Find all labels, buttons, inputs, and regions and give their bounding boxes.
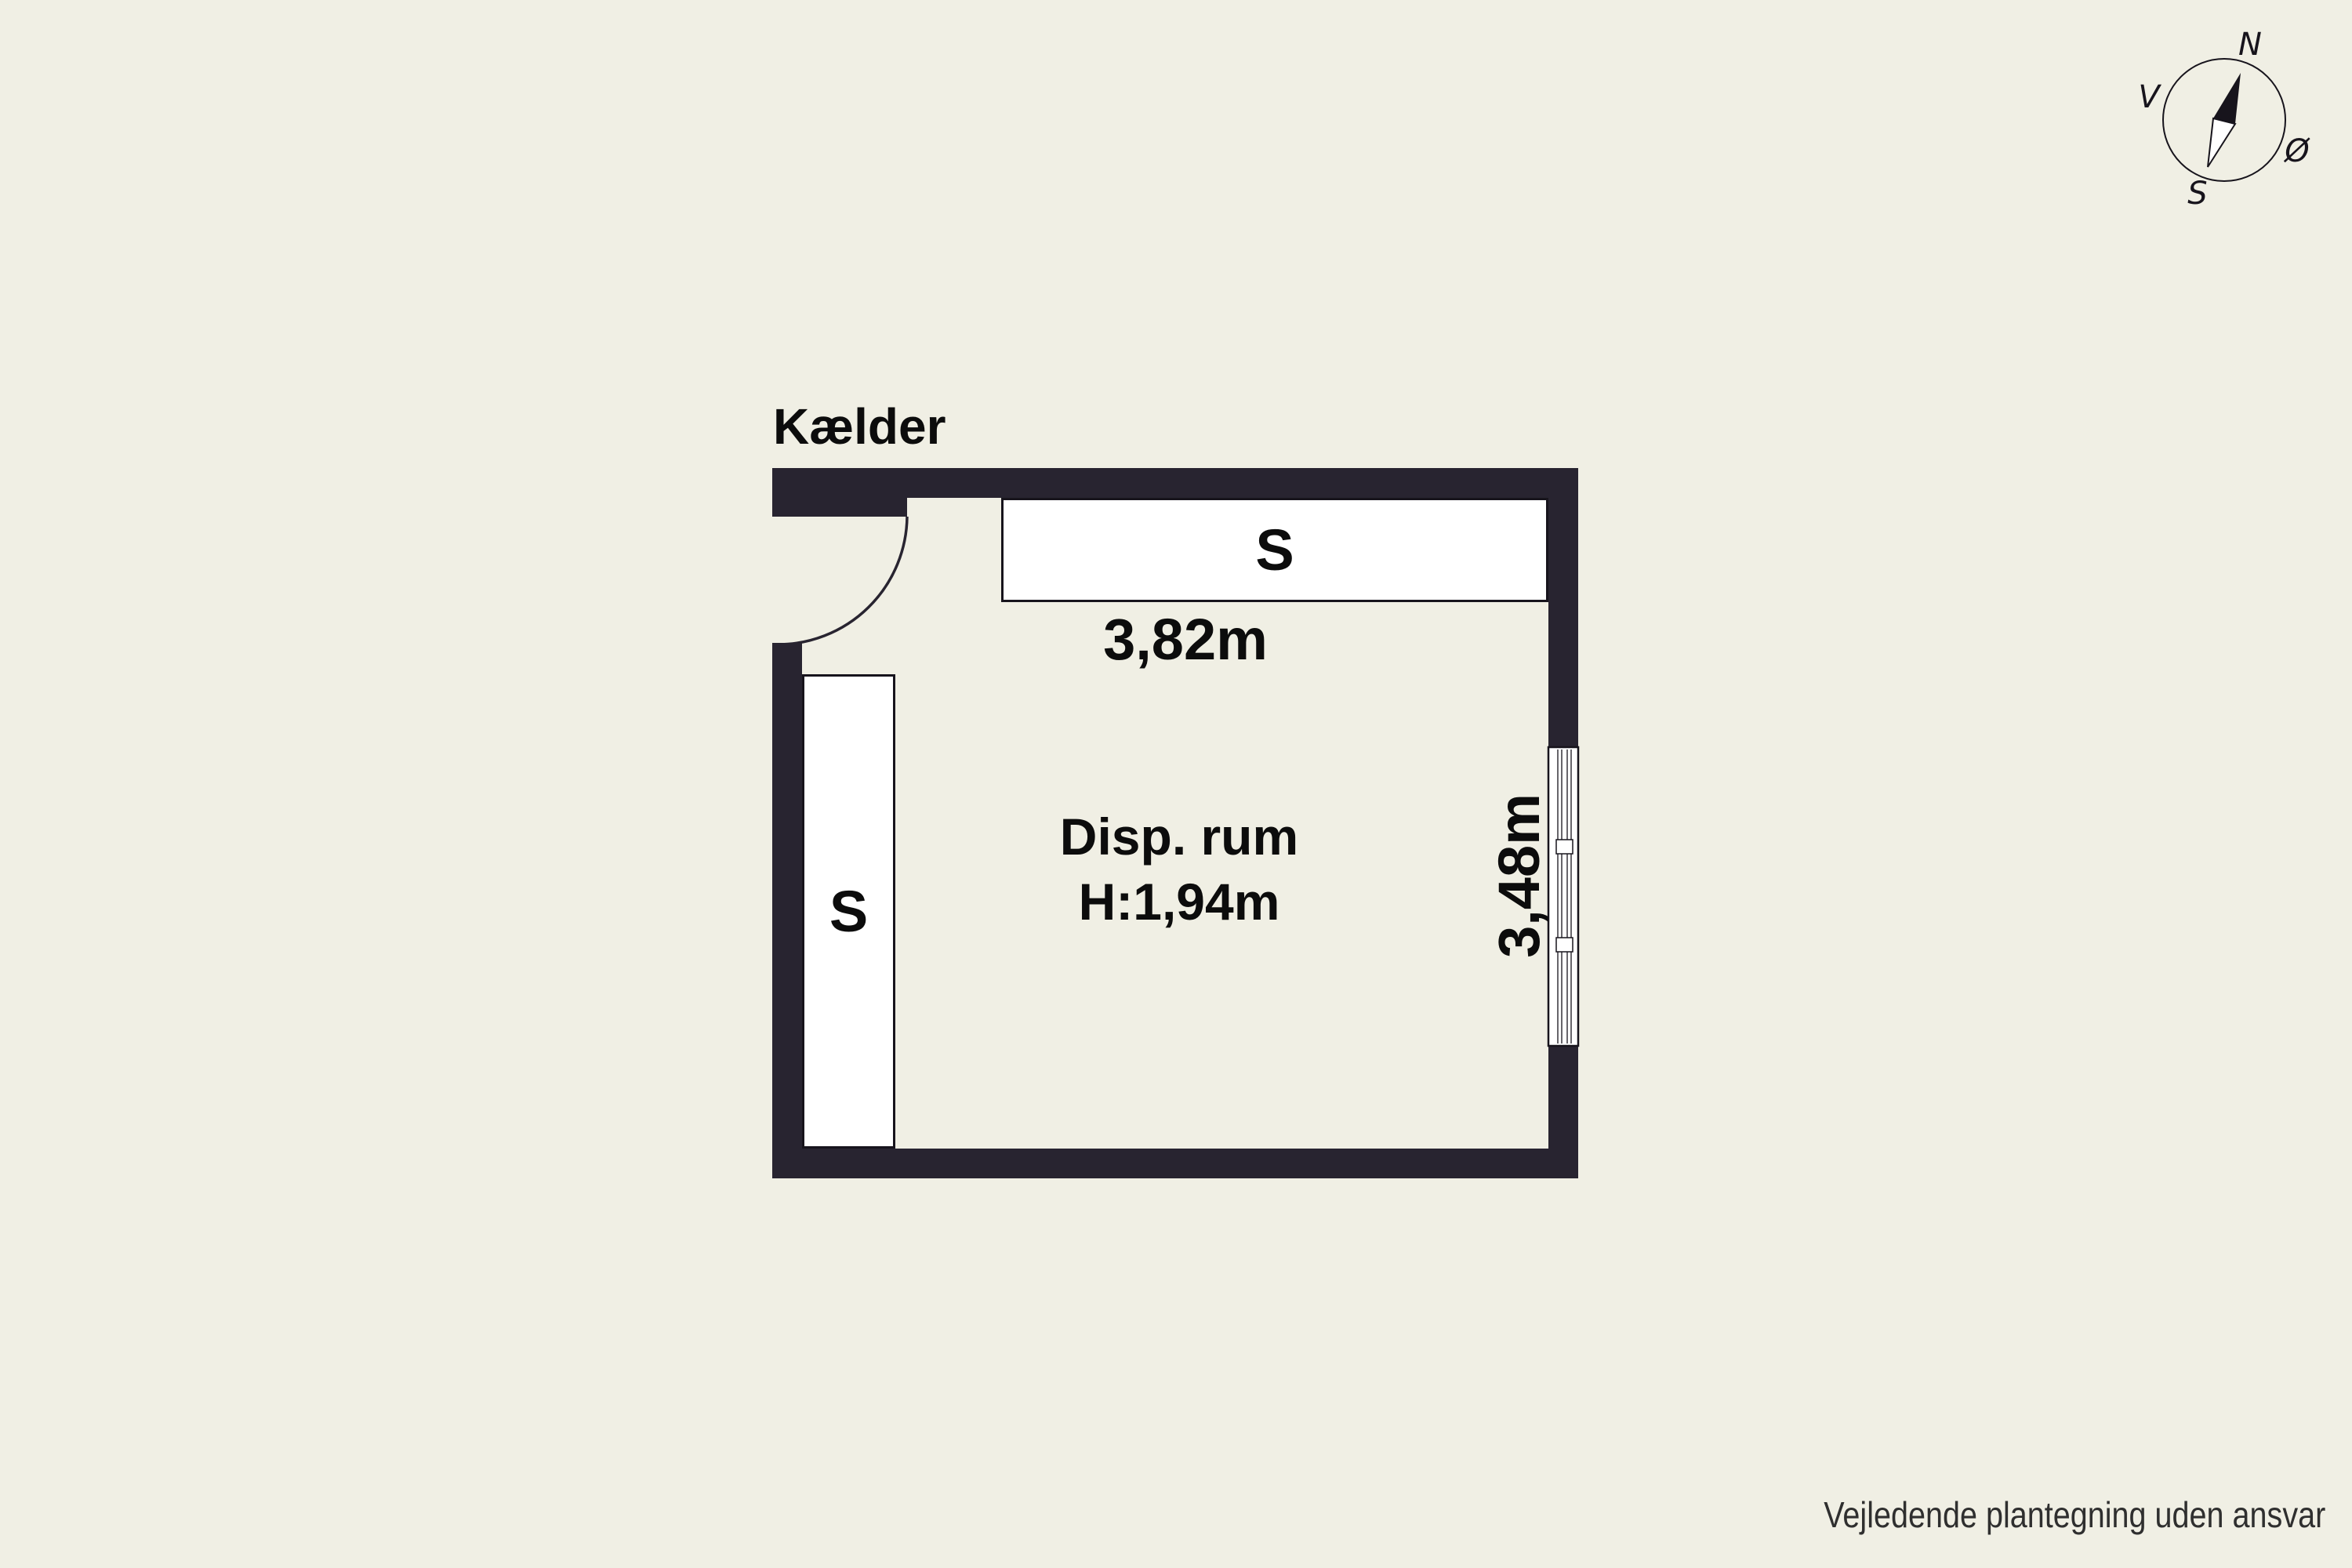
compass-label-south: S bbox=[2187, 178, 2207, 209]
window bbox=[1544, 743, 1592, 1057]
compass-needle-north bbox=[2213, 73, 2241, 124]
compass-label-east: Ø bbox=[2285, 136, 2309, 167]
dim-width-label: 3,82m bbox=[950, 609, 1421, 670]
compass-label-west: V bbox=[2138, 82, 2159, 113]
cabinet-left: S bbox=[802, 674, 895, 1149]
wall-right-lower bbox=[1548, 1046, 1578, 1178]
door-swing-arc bbox=[768, 494, 941, 666]
page-title: Kælder bbox=[773, 401, 946, 452]
dim-depth-label: 3,48m bbox=[1489, 641, 1550, 1111]
wall-bottom bbox=[772, 1149, 1578, 1178]
window-mullion-2 bbox=[1556, 938, 1573, 952]
floorplan-canvas: Kælder S S 3,82m 3,48m Disp. rum H:1,94m bbox=[0, 0, 2352, 1568]
door-swing-path bbox=[777, 517, 907, 644]
room-name: Disp. rum bbox=[944, 804, 1414, 869]
window-mullion-1 bbox=[1556, 840, 1573, 854]
compass-needle-south bbox=[2208, 118, 2235, 167]
room-label: Disp. rum H:1,94m bbox=[944, 804, 1414, 935]
wall-left-lower bbox=[772, 643, 802, 1178]
wall-right-upper bbox=[1548, 468, 1578, 747]
shelf-label: S bbox=[1255, 521, 1294, 579]
shelf-top: S bbox=[1001, 498, 1548, 602]
compass-label-north: N bbox=[2238, 29, 2262, 60]
disclaimer-text: Vejledende plantegning uden ansvar bbox=[1824, 1494, 2325, 1535]
cabinet-label: S bbox=[829, 883, 868, 941]
window-frame bbox=[1548, 747, 1578, 1046]
room-height: H:1,94m bbox=[944, 869, 1414, 935]
